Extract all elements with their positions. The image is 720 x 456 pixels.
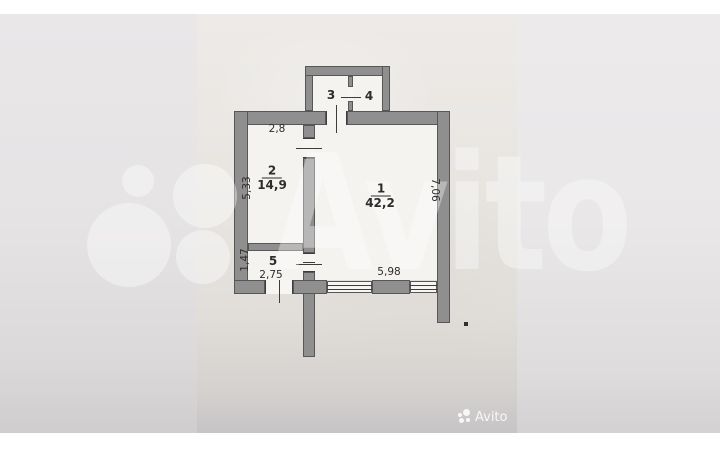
watermark-logo-dot-small <box>122 165 154 197</box>
dim-room5-left-1-47: 1,47 <box>239 248 251 271</box>
avito-logo-text: Avito <box>475 410 508 425</box>
dim-room5-bottom-2-75: 2,75 <box>259 269 282 281</box>
watermark-logo-dot-big <box>87 203 171 287</box>
room-5-number: 5 <box>269 254 277 268</box>
watermark-brand-text: Avito <box>272 134 628 294</box>
avito-logo: Avito <box>458 409 508 425</box>
annex-divider-lower <box>348 101 353 111</box>
avito-logo-dots-icon <box>458 409 472 425</box>
room-3-number: 3 <box>327 88 335 102</box>
dim-room2-left-5-33: 5,33 <box>241 176 253 199</box>
room-4-number: 4 <box>365 89 373 103</box>
annex-wall-top <box>305 66 390 76</box>
watermark-logo-dot-large <box>173 164 237 228</box>
annex-interior-door-gap <box>348 87 353 101</box>
room-2-area: 14,9 <box>257 178 287 192</box>
room-1-area: 42,2 <box>365 196 395 210</box>
plan-corner-mark <box>464 322 468 326</box>
room-2-number: 2 <box>262 164 282 179</box>
dim-room1-bottom-5-98: 5,98 <box>377 266 400 278</box>
watermark-logo-dot-medium <box>176 230 230 284</box>
room-1-number: 1 <box>371 182 391 197</box>
annex-divider-upper <box>348 76 353 87</box>
dim-room1-right-7-06: 7,06 <box>429 178 441 201</box>
annex-wall-right <box>382 66 390 111</box>
dim-top-2-8: 2,8 <box>269 123 286 135</box>
annex-door-swing-line <box>341 97 361 98</box>
bottom-wall-left-segment <box>234 280 265 294</box>
